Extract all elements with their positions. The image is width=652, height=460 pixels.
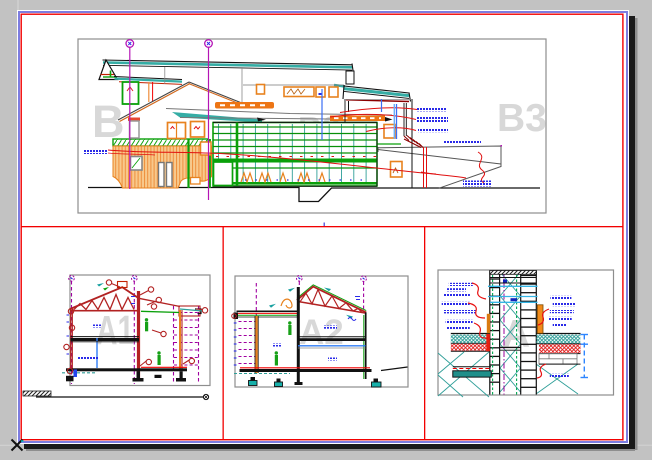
svg-text:B3: B3 xyxy=(497,97,547,140)
svg-text:A1: A1 xyxy=(96,307,134,353)
